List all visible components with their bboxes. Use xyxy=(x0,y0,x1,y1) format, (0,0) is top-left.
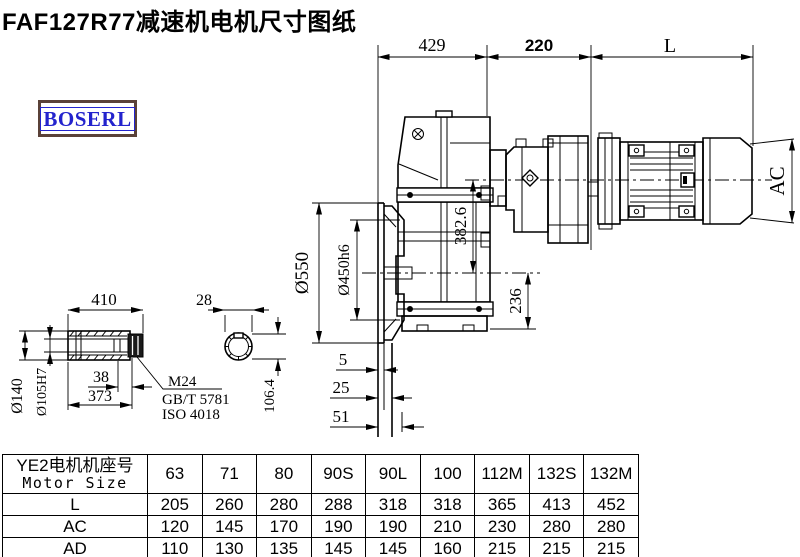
table-header-motor-size: YE2电机机座号 Motor Size xyxy=(3,455,148,494)
table-col-header: 63 xyxy=(148,455,203,494)
table-cell: 210 xyxy=(420,516,475,538)
table-col-header: 90S xyxy=(311,455,366,494)
shaft-key-detail xyxy=(681,173,694,187)
dim-450h6-label: Ø450h6 xyxy=(336,244,353,296)
dim-220-label: 220 xyxy=(525,36,553,55)
table-col-header: 80 xyxy=(257,455,312,494)
table-col-header: 132S xyxy=(529,455,584,494)
header-cn: YE2电机机座号 xyxy=(3,456,147,475)
table-cell: 318 xyxy=(420,494,475,516)
dim-25-label: 25 xyxy=(333,378,350,397)
table-row-label: AD xyxy=(3,538,148,557)
table-cell: 288 xyxy=(311,494,366,516)
table-row-AC: AC 120 145 170 190 190 210 230 280 280 xyxy=(3,516,639,538)
adapter-bell xyxy=(506,147,548,232)
dim-410-label: 410 xyxy=(91,290,117,309)
table-cell: 215 xyxy=(584,538,639,557)
motor-side-view: AC xyxy=(598,133,794,229)
gearbox-front-view xyxy=(397,111,493,331)
eyebolt-icon xyxy=(522,170,538,186)
table-cell: 260 xyxy=(202,494,257,516)
table-cell: 190 xyxy=(311,516,366,538)
table-cell: 145 xyxy=(311,538,366,557)
table-col-header: 100 xyxy=(420,455,475,494)
dim-106-label: 106.4 xyxy=(262,379,278,413)
lifting-lug xyxy=(436,111,452,117)
table-cell: 452 xyxy=(584,494,639,516)
table-cell: 190 xyxy=(366,516,421,538)
hollow-shaft-body xyxy=(68,331,130,360)
m24-end-bolt xyxy=(128,334,143,357)
dim-5-label: 5 xyxy=(339,350,348,369)
shaft-detail-view: 410 Ø140 Ø105H7 xyxy=(9,290,230,423)
table-cell: 135 xyxy=(257,538,312,557)
table-cell: 145 xyxy=(366,538,421,557)
standard-iso-label: ISO 4018 xyxy=(162,407,220,423)
table-cell: 110 xyxy=(148,538,203,557)
table-cell: 170 xyxy=(257,516,312,538)
drawing-page: FAF127R77减速机电机尺寸图纸 BOSERL 429 220 L xyxy=(0,0,800,557)
motor-flange xyxy=(598,138,620,224)
dim-373-label: 373 xyxy=(88,388,112,405)
table-cell: 120 xyxy=(148,516,203,538)
adapter xyxy=(490,136,598,243)
table-col-header: 90L xyxy=(366,455,421,494)
dim-51-label: 51 xyxy=(333,407,350,426)
header-en: Motor Size xyxy=(3,475,147,492)
table-row-L: L 205 260 280 288 318 318 365 413 452 xyxy=(3,494,639,516)
dim-429-label: 429 xyxy=(419,35,446,55)
table-row-AD: AD 110 130 135 145 145 160 215 215 215 xyxy=(3,538,639,557)
adapter-block xyxy=(548,136,588,243)
table-col-header: 71 xyxy=(202,455,257,494)
table-row-label: L xyxy=(3,494,148,516)
table-cell: 365 xyxy=(475,494,530,516)
standard-gbt-label: GB/T 5781 xyxy=(162,392,230,408)
table-cell: 215 xyxy=(475,538,530,557)
motor-size-table: YE2电机机座号 Motor Size 63 71 80 90S 90L 100… xyxy=(2,454,639,557)
table-cell: 413 xyxy=(529,494,584,516)
table-cell: 215 xyxy=(529,538,584,557)
table-cell: 160 xyxy=(420,538,475,557)
table-cell: 130 xyxy=(202,538,257,557)
table-cell: 230 xyxy=(475,516,530,538)
table-col-header: 132M xyxy=(584,455,639,494)
table-cell: 205 xyxy=(148,494,203,516)
dim-L-label: L xyxy=(664,35,676,57)
dim-236-label: 236 xyxy=(506,288,525,314)
table-row-label: AC xyxy=(3,516,148,538)
table-cell: 280 xyxy=(257,494,312,516)
dim-28-label: 28 xyxy=(196,292,212,309)
table-cell: 280 xyxy=(529,516,584,538)
dim-382-label: 382.6 xyxy=(451,207,470,245)
dim-38-label: 38 xyxy=(93,369,109,386)
dim-AC-label: AC xyxy=(765,166,789,195)
housing-upper-outline xyxy=(398,117,490,188)
dim-140-label: Ø140 xyxy=(9,378,26,414)
table-col-header: 112M xyxy=(475,455,530,494)
table-cell: 280 xyxy=(584,516,639,538)
table-cell: 145 xyxy=(202,516,257,538)
keyway-notch xyxy=(234,333,243,338)
bolt-spec-label: M24 xyxy=(168,374,197,390)
table-cell: 318 xyxy=(366,494,421,516)
dim-105H7-label: Ø105H7 xyxy=(35,368,50,416)
dim-550-label: Ø550 xyxy=(292,252,313,294)
table-header-row: YE2电机机座号 Motor Size 63 71 80 90S 90L 100… xyxy=(3,455,639,494)
